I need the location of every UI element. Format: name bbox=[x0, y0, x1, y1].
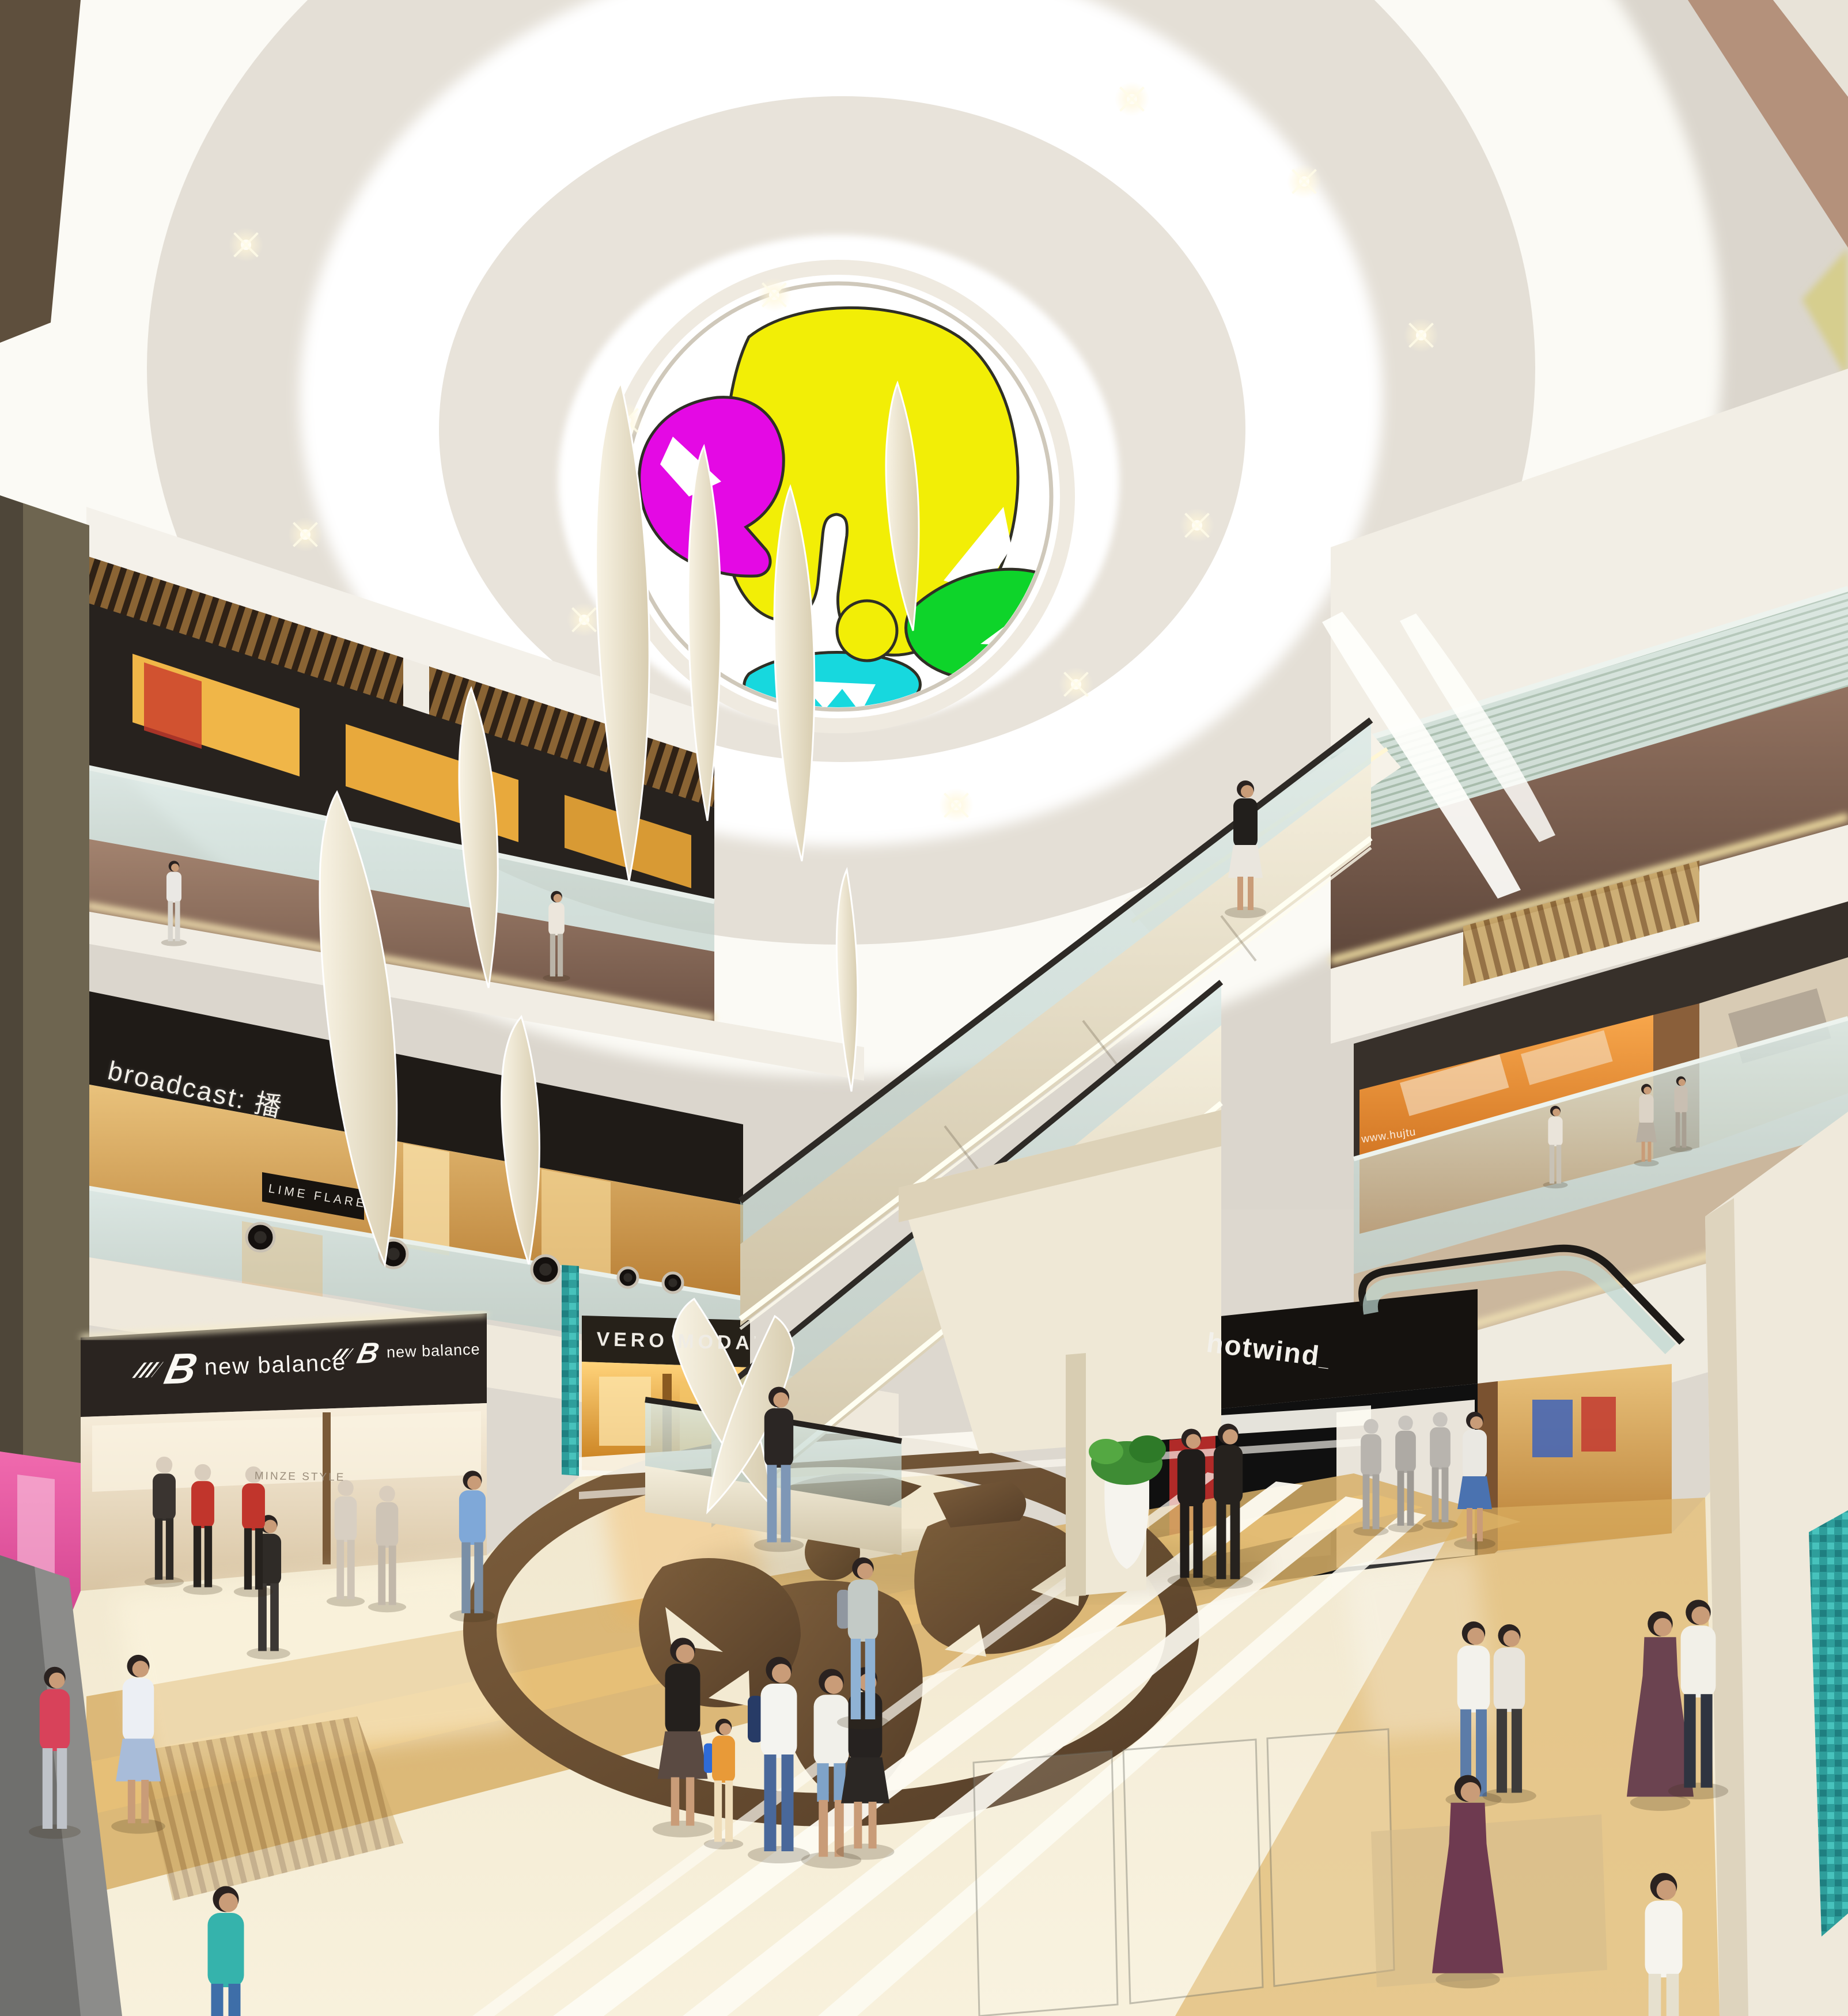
nb-logo-icon: B bbox=[160, 1343, 202, 1394]
downlight-icon bbox=[1180, 508, 1214, 543]
downlight-icon bbox=[288, 517, 323, 552]
new-balance-sign-right: B new balance bbox=[335, 1332, 481, 1371]
vero-moda-mark: ’ bbox=[753, 1335, 760, 1345]
downlight-icon bbox=[1404, 318, 1438, 353]
new-balance-sign-left: B new balance bbox=[137, 1338, 347, 1394]
teal-mosaic-strip bbox=[562, 1265, 579, 1476]
atrium-render-canvas bbox=[0, 0, 1848, 2016]
speaker-grille-icon bbox=[663, 1273, 683, 1293]
downlight-icon bbox=[229, 228, 263, 262]
speaker-grille-icon bbox=[532, 1256, 559, 1283]
glass-railing-reflection bbox=[974, 1729, 1394, 2016]
new-balance-label: new balance bbox=[204, 1350, 347, 1381]
hotwind-mark: _ bbox=[1318, 1351, 1331, 1371]
mall-atrium-scene: broadcast: 播 LIME FLARE B new balance B … bbox=[0, 0, 1848, 2016]
downlight-icon bbox=[939, 788, 974, 823]
nb-logo-icon: B bbox=[354, 1336, 383, 1370]
downlight-icon bbox=[1115, 82, 1149, 116]
vero-moda-sign: VERO MODA’ bbox=[596, 1328, 760, 1355]
downlight-icon bbox=[1287, 164, 1321, 199]
speaker-grille-icon bbox=[247, 1223, 274, 1251]
downlight-icon bbox=[1059, 667, 1093, 702]
speaker-grille-icon bbox=[618, 1268, 638, 1287]
new-balance-label: new balance bbox=[387, 1340, 481, 1362]
minze-style-sign: MINZE STYLE bbox=[255, 1470, 346, 1484]
downlight-icon bbox=[757, 278, 792, 312]
